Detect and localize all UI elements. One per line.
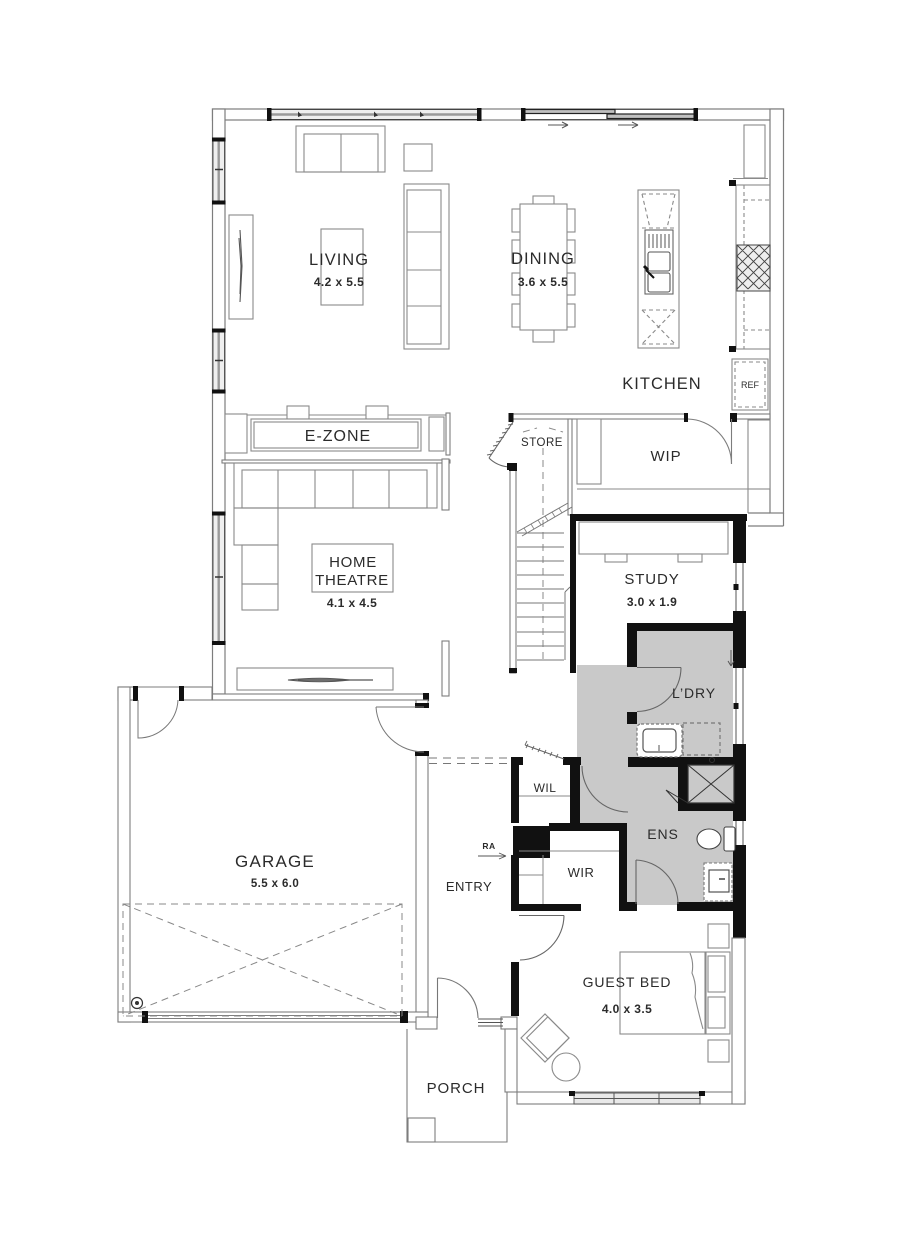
svg-text:L’DRY: L’DRY [672,685,716,701]
svg-text:STORE: STORE [521,437,563,449]
svg-text:ENTRY: ENTRY [446,879,492,894]
svg-text:WIP: WIP [650,448,681,465]
svg-text:3.0 x 1.9: 3.0 x 1.9 [627,595,677,609]
svg-text:HOME: HOME [329,554,377,571]
svg-text:GARAGE: GARAGE [235,852,315,871]
svg-text:WIR: WIR [568,865,595,880]
svg-text:4.0 x 3.5: 4.0 x 3.5 [602,1002,652,1016]
svg-text:4.1 x 4.5: 4.1 x 4.5 [327,596,377,610]
svg-text:4.2 x 5.5: 4.2 x 5.5 [314,275,364,289]
svg-text:E-ZONE: E-ZONE [305,428,371,445]
svg-text:STUDY: STUDY [624,571,679,588]
svg-text:KITCHEN: KITCHEN [622,375,701,393]
svg-text:REF: REF [741,380,760,390]
svg-text:THEATRE: THEATRE [315,572,389,589]
svg-text:5.5 x 6.0: 5.5 x 6.0 [251,878,299,890]
svg-text:LIVING: LIVING [309,251,369,269]
svg-text:ENS: ENS [647,826,679,842]
svg-text:GUEST BED: GUEST BED [583,974,672,990]
svg-text:RA: RA [482,841,495,851]
svg-text:PORCH: PORCH [427,1080,486,1097]
svg-text:DINING: DINING [511,250,575,268]
svg-text:WIL: WIL [534,781,557,795]
svg-text:3.6 x 5.5: 3.6 x 5.5 [518,275,568,289]
